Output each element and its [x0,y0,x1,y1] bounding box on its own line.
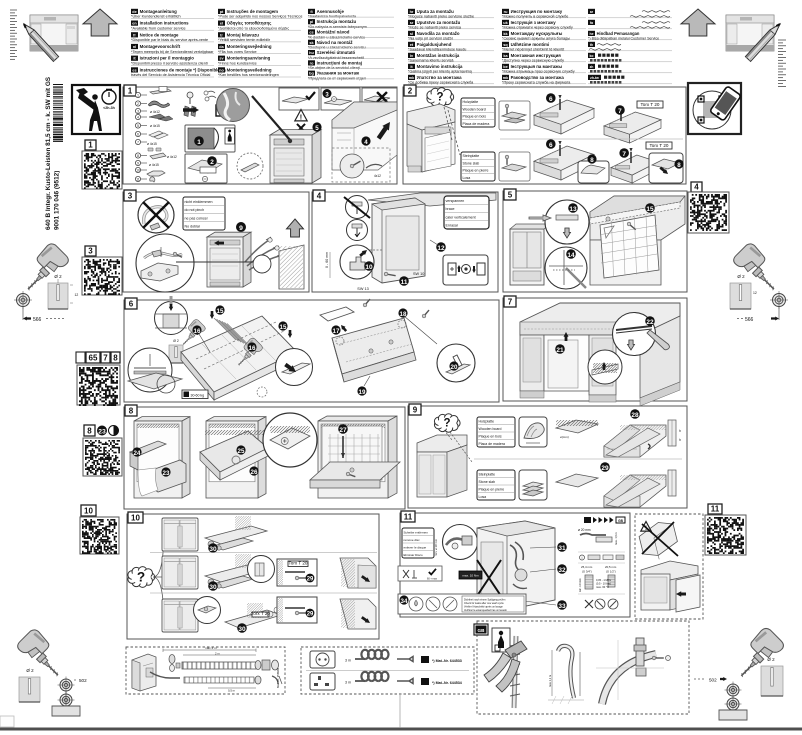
svg-text:Eliminar Disco: Eliminar Disco [404,553,424,557]
svg-text:*Über Kundendienst erhältlich: *Über Kundendienst erhältlich [131,15,181,19]
svg-text:ro: ro [310,61,314,65]
svg-text:Verificar la estanqueidad tras: Verificar la estanqueidad tras un lavado [464,609,507,612]
svg-text:65: 65 [89,353,98,362]
svg-text:zh-tw: zh-tw [590,76,599,80]
svg-text:max 4 m: max 4 m [205,646,217,650]
svg-text:través del Servicio de Asisten: través del Servicio de Asistencia Técnic… [131,73,211,77]
svg-text:Ø 2: Ø 2 [737,274,745,279]
svg-text:enlever le disque: enlever le disque [404,545,427,549]
svg-text:12: 12 [75,293,79,297]
svg-text:Plaque en bois: Plaque en bois [479,434,502,438]
svg-text:*Можна атрымаць праз сервісную: *Можна атрымаць праз сервісную службу [502,70,575,74]
svg-text:31: 31 [558,545,566,552]
svg-text:4x12: 4x12 [374,174,381,178]
svg-text:4: 4 [364,139,368,146]
svg-text:Montāžas instrukcija: Montāžas instrukcija [417,53,460,58]
svg-text:sr: sr [410,21,414,25]
svg-text:max. 1,5 m: max. 1,5 m [614,532,618,545]
svg-text:7: 7 [508,297,513,306]
svg-text:8: 8 [677,162,681,169]
svg-text:bg: bg [309,72,314,76]
svg-text:4: 4 [317,191,322,200]
svg-text:Enrasar: Enrasar [446,224,459,228]
svg-text:23: 23 [163,470,170,477]
svg-text:11: 11 [136,177,140,181]
svg-text:25,4 mm: 25,4 mm [581,565,593,569]
svg-text:15: 15 [217,308,224,315]
svg-text:8: 8 [137,154,139,158]
svg-text:2: 2 [408,86,413,95]
svg-text:ko: ko [590,54,594,58]
svg-text:cs: cs [309,31,313,35]
svg-text:!: ! [300,114,302,122]
svg-text:Monteringsveiledning: Monteringsveiledning [227,67,272,72]
svg-text:Scheibe entfernen: Scheibe entfernen [404,530,429,534]
svg-text:nl: nl [133,45,136,49]
svg-text:30: 30 [209,584,217,591]
svg-text:1: 1 [88,140,93,149]
svg-text:11: 11 [401,279,408,286]
svg-text:Steinplatte: Steinplatte [463,154,480,158]
svg-text:13: 13 [569,206,577,213]
svg-text:502: 502 [79,678,87,683]
svg-text:Ø 2: Ø 2 [54,274,62,279]
svg-text:8: 8 [590,157,594,164]
svg-text:Instrukcja montażu: Instrukcja montażu [317,19,357,24]
svg-text:ø 20 mm: ø 20 mm [578,528,591,532]
svg-text:fi: fi [310,10,312,14]
svg-text:No doblar: No doblar [185,225,201,229]
svg-text:*Finns hos kundservice: *Finns hos kundservice [218,62,257,66]
svg-text:*Dostupné u zákazníckeho servi: *Dostupné u zákazníckeho servisu [308,46,366,50]
svg-text:Uputstvo za montažu: Uputstvo za montažu [417,20,461,25]
svg-text:*Saadaval klienditeeninduse ka: *Saadaval klienditeeninduse kaudu [408,48,466,52]
svg-text:2 m: 2 m [215,652,220,656]
svg-text:pl: pl [310,20,313,24]
svg-text:3: 3 [137,109,139,113]
svg-text:es: es [132,68,136,72]
svg-text:33: 33 [558,603,566,610]
svg-text:Montavimo instrukcija: Montavimo instrukcija [417,64,463,69]
svg-text:Инструкция по монтажу: Инструкция по монтажу [511,9,563,14]
svg-text:Wooden board: Wooden board [479,427,502,431]
svg-text:min. 10 l/min.: min. 10 l/min. [579,577,582,592]
svg-text:Ø 2: Ø 2 [173,339,179,343]
svg-text:19: 19 [359,389,366,396]
svg-text:Οδηγίες τοποθέτησης: Οδηγίες τοποθέτησης [227,21,273,26]
svg-text:*Сервис қызметі арқылы алуға б: *Сервис қызметі арқылы алуға болады [502,37,570,41]
svg-text:he: he [590,32,594,36]
svg-text:Torx T 20: Torx T 20 [289,561,308,566]
svg-text:ø 4x12: ø 4x12 [150,110,160,114]
svg-text:6: 6 [549,142,553,149]
svg-text:8: 8 [129,406,134,415]
svg-text:Ø 2: Ø 2 [767,657,775,662]
svg-text:29: 29 [307,612,314,618]
svg-text:Holzplatte: Holzplatte [463,100,479,104]
svg-text:fa: fa [590,21,593,25]
svg-text:7: 7 [103,353,108,362]
svg-text:Montageanleitung: Montageanleitung [140,9,178,14]
svg-text:10: 10 [131,513,140,522]
svg-text:max. 10 Nm: max. 10 Nm [462,574,479,578]
svg-text:en: en [132,22,137,26]
svg-text:Návod na montáž: Návod na montáž [317,40,354,45]
svg-text:6: 6 [137,132,139,136]
svg-text:Ø 2: Ø 2 [26,668,34,673]
svg-text:0,05 - 1 MPa: 0,05 - 1 MPa [596,578,611,582]
svg-text:Szerelési útmutató: Szerelési útmutató [317,50,356,55]
svg-text:Plaque en bois: Plaque en bois [463,115,487,119]
svg-text:(G 3/4"): (G 3/4") [582,570,592,574]
svg-text:Losa: Losa [463,176,471,180]
svg-text:12: 12 [437,245,445,252]
svg-text:<2h-3h: <2h-3h [103,106,115,110]
svg-text:30-60 kg: 30-60 kg [191,394,205,398]
svg-text:min. ø 18 mm: min. ø 18 mm [434,538,438,556]
svg-text:6: 6 [549,96,553,103]
svg-text:do not pinch: do not pinch [185,208,205,212]
svg-text:9: 9 [137,161,139,165]
svg-text:*Do nabycia w serwisie fabrycz: *Do nabycia w serwisie fabrycznym [308,25,367,29]
svg-text:*Fås hos vores Service: *Fås hos vores Service [218,50,257,54]
svg-text:29: 29 [307,577,314,583]
svg-text:Placa de madera: Placa de madera [479,442,506,446]
svg-text:Montagevoorschrift: Montagevoorschrift [140,44,181,49]
svg-text:640 B Integr. Kusto-Leisten 81: 640 B Integr. Kusto-Leisten 81,5 cm - k.… [45,76,52,230]
svg-text:15: 15 [280,324,287,331]
svg-text:*Kan bestilles hos serviceavde: *Kan bestilles hos serviceavdelingen [218,73,279,77]
svg-text:9001 170 046 (9512): 9001 170 046 (9512) [54,171,61,230]
svg-text:9: 9 [413,405,418,414]
svg-text:Instrucţiuni de montaj: Instrucţiuni de montaj [317,60,362,65]
svg-text:mk: mk [503,76,509,80]
svg-text:11: 11 [711,504,720,513]
svg-text:*Saņemama klientu servisā: *Saņemama klientu servisā [408,59,454,63]
svg-text:⌀(mm): ⌀(mm) [560,435,569,439]
svg-text:30: 30 [209,546,217,553]
svg-text:7: 7 [622,151,626,158]
svg-text:de: de [132,10,136,14]
svg-text:SW 13: SW 13 [357,287,368,291]
svg-text:ru: ru [504,10,508,14]
svg-text:5: 5 [508,190,513,199]
svg-text:32: 32 [558,567,566,574]
svg-text:th: th [590,43,593,47]
svg-text:Torx T 20: Torx T 20 [641,102,660,107]
svg-text:*Moguće nabaviti preko servisn: *Moguće nabaviti preko servisne službe [408,15,474,19]
svg-text:566: 566 [33,317,42,323]
svg-text:3: 3 [128,191,133,200]
svg-text:*Na voljo pri servisni službi: *Na voljo pri servisni službi [408,37,453,41]
svg-text:*Преку сервисната служба на фи: *Преку сервисната служба на фирмата [502,81,571,85]
svg-text:Monteringsvejledning: Monteringsvejledning [227,44,272,49]
svg-text:zh: zh [590,65,594,69]
svg-text:brace: brace [446,207,455,211]
svg-text:Plaque en pierre: Plaque en pierre [479,487,505,491]
svg-text:Istruzioni per il montaggio: Istruzioni per il montaggio [140,56,195,61]
svg-text:Раководство за монтажа: Раководство за монтажа [511,75,565,80]
svg-text:21: 21 [556,347,564,354]
svg-text:30: 30 [238,626,246,633]
svg-text:1: 1 [137,93,139,97]
svg-text:8: 8 [87,426,92,435]
svg-text:*Saatavissa huoltopalvelusta: *Saatavissa huoltopalvelusta [308,15,357,19]
svg-text:Torx T 20: Torx T 20 [650,143,669,148]
svg-text:?: ? [137,569,145,584]
svg-text:nicht einklemmen: nicht einklemmen [185,200,213,204]
svg-text:10: 10 [84,506,93,515]
svg-text:ø 4x15: ø 4x15 [149,163,159,167]
svg-text:*Предлага се от сервизния отде: *Предлага се от сервизния отдел [308,77,366,81]
svg-text:24: 24 [134,450,141,457]
svg-text:Указания за монтаж: Указания за монтаж [317,71,360,76]
svg-text:Monteringsanvisning: Monteringsanvisning [227,56,271,61]
svg-text:Інструкція з монтажу: Інструкція з монтажу [511,20,557,25]
svg-text:20: 20 [451,364,458,371]
svg-text:Steinplatte: Steinplatte [479,472,496,476]
svg-text:*Pode ser adquirido nos nossos: *Pode ser adquirido nos nossos Serviços … [218,15,302,19]
svg-text:*Galima įsigyti per klientų ap: *Galima įsigyti per klientų aptarnavimą [408,70,473,74]
svg-text:23: 23 [98,429,106,436]
svg-text:ne pas coincer: ne pas coincer [185,216,209,220]
svg-text:Stone slab: Stone slab [463,161,480,165]
svg-text:20,5 mm: 20,5 mm [605,565,617,569]
svg-text:16: 16 [249,345,256,352]
svg-text:ø 4x15: ø 4x15 [147,142,157,146]
svg-text:Asennusohje: Asennusohje [317,9,345,14]
svg-text:4: 4 [137,115,139,119]
svg-text:27: 27 [339,427,347,434]
svg-text:*Može se nabaviti preko servis: *Može se nabaviti preko servisa [408,26,462,30]
svg-text:remove disc: remove disc [404,538,421,542]
svg-text:*) Mat.-Nr. 644533: *) Mat.-Nr. 644533 [432,659,462,663]
svg-text:Notice de montage: Notice de montage [140,32,179,37]
svg-text:Uputa za montažu: Uputa za montažu [417,9,455,14]
svg-text:Mat.-Nr. 358984: Mat.-Nr. 358984 [276,668,280,688]
svg-text:26: 26 [251,469,258,476]
svg-text:*Merret nëpërmjet shërbimit të: *Merret nëpërmjet shërbimit të klientit [502,48,565,52]
svg-text:hr: hr [410,10,414,14]
svg-text:0 - 60 mm: 0 - 60 mm [325,252,329,268]
svg-text:7: 7 [618,108,622,115]
svg-text:60 + max: 60 + max [427,578,438,581]
svg-text:17: 17 [333,328,340,335]
svg-text:0,5 m: 0,5 m [228,689,236,693]
svg-text:18: 18 [400,311,407,318]
svg-text:el: el [220,22,223,26]
svg-text:5: 5 [315,125,319,132]
svg-text:10: 10 [365,264,373,271]
svg-text:h: h [679,429,681,433]
svg-text:12: 12 [753,291,757,295]
svg-text:5: 5 [137,124,139,128]
svg-text:caler verticalement: caler verticalement [446,215,476,219]
svg-text:Navodila za montažo: Navodila za montažo [417,31,460,36]
svg-text:*Se obţine de la serviciul cli: *Se obţine de la serviciul clienţi [308,66,360,70]
svg-text:?: ? [443,418,450,430]
svg-text:Udhëzime montimi: Udhëzime montimi [511,42,550,47]
svg-text:*Disponibili presso il servizi: *Disponibili presso il servizio assisten… [131,62,208,66]
svg-text:Montážní návod: Montážní návod [317,30,350,35]
svg-text:SW 10: SW 10 [413,272,424,276]
svg-text:502: 502 [709,678,717,683]
svg-text:Placa de madera: Placa de madera [463,122,490,126]
svg-text:Hindbad Pemasangan: Hindbad Pemasangan [597,31,640,36]
svg-text:sq: sq [503,43,508,47]
svg-text:34: 34 [401,598,408,605]
svg-text:29: 29 [601,465,609,472]
svg-text:7: 7 [137,140,139,144]
svg-text:1: 1 [128,86,133,95]
svg-text:?: ? [436,92,443,104]
svg-text:Holzplatte: Holzplatte [479,419,495,423]
svg-text:Монтажная инструкция: Монтажная инструкция [511,53,562,58]
svg-text:8: 8 [113,353,118,362]
svg-text:4: 4 [694,182,699,191]
svg-text:max. 60 °C: max. 60 °C [596,585,609,589]
svg-text:*Се добива преку сервисната сл: *Се добива преку сервисната служба [408,81,474,85]
svg-text:*K dostání u zákaznického serv: *K dostání u zákaznického servisu [308,35,365,39]
svg-text:Paigaldusjuhend: Paigaldusjuhend [417,42,452,47]
svg-text:22: 22 [646,319,654,326]
svg-text:28: 28 [631,412,639,419]
svg-text:hu: hu [309,51,314,55]
svg-text:*Yetkili servisten temin edile: *Yetkili servisten temin edilebilir [218,38,271,42]
svg-text:Instrucciones de montaje *): Instrucciones de montaje *) Disponibles … [140,67,227,72]
svg-text:*Tegen meerprijs bij de Servic: *Tegen meerprijs bij de Servicedienst ve… [131,50,214,54]
svg-text:sl: sl [410,32,413,36]
svg-text:3 m: 3 m [345,659,351,663]
svg-text:GB: GB [618,519,623,523]
svg-text:mk: mk [409,76,415,80]
svg-text:Wooden board: Wooden board [463,107,486,111]
svg-text:6: 6 [129,299,134,308]
svg-text:3 m: 3 m [345,681,351,685]
svg-text:GB: GB [478,628,486,633]
svg-text:16: 16 [194,328,201,335]
svg-text:Упатство за монтажа: Упатство за монтажа [417,75,462,80]
svg-text:be: be [503,65,507,69]
svg-text:Montaj kılavuzu: Montaj kılavuzu [227,32,260,37]
svg-text:*Available from customer servi: *Available from customer service [131,26,186,30]
svg-text:*Доступно через сервисную служ: *Доступно через сервисную службу [502,59,564,63]
svg-text:566: 566 [745,317,754,323]
svg-text:*) Mat.-Nr. 644534: *) Mat.-Nr. 644534 [432,681,462,685]
svg-text:Інструкцыя па мантажы: Інструкцыя па мантажы [511,64,563,69]
svg-text:15: 15 [646,206,654,213]
svg-text:h: h [679,438,681,442]
svg-text:2: 2 [210,159,214,166]
svg-text:Plaque en pierre: Plaque en pierre [463,169,489,173]
svg-text:*Можно получить в сервисной сл: *Можно получить в сервисной службе [502,15,568,19]
svg-text:25: 25 [238,448,245,455]
svg-text:1: 1 [197,139,201,146]
svg-text:Монтаждау нұсқаулығы: Монтаждау нұсқаулығы [511,31,563,36]
svg-text:11: 11 [404,512,413,521]
svg-text:9: 9 [239,225,243,232]
svg-text:*Можна отримати через сервісну: *Можна отримати через сервісну службу [502,26,573,30]
svg-text:Stone slab: Stone slab [479,480,496,484]
svg-text:*Διατίθεται από το εξουσιοδοτη: *Διατίθεται από το εξουσιοδοτημένο σέρβι… [218,26,289,30]
svg-text:Installation instructions: Installation instructions [140,21,190,26]
svg-text:no: no [219,68,224,72]
svg-text:*Disponible par le biais du se: *Disponible par le biais du service aprè… [131,38,208,42]
svg-text:10: 10 [136,168,140,172]
svg-text:(0,5 - 10 bar): (0,5 - 10 bar) [596,582,611,586]
svg-text:3: 3 [88,246,93,255]
svg-text:14: 14 [567,252,575,259]
svg-text:ø 4x12: ø 4x12 [167,155,177,159]
svg-text:Losa: Losa [479,495,487,499]
svg-text:*A vevőszolgálatnál beszerezhe: *A vevőszolgálatnál beszerezhető [308,56,364,60]
svg-text:Instruções de montagem: Instruções de montagem [227,9,279,14]
svg-text:2: 2 [137,102,139,106]
svg-text:(G 1/2"): (G 1/2") [606,570,616,574]
svg-text:max 1,1 m: max 1,1 m [548,675,552,687]
svg-text:ø 4x15: ø 4x15 [150,124,160,128]
svg-text:verspannen: verspannen [446,199,465,203]
